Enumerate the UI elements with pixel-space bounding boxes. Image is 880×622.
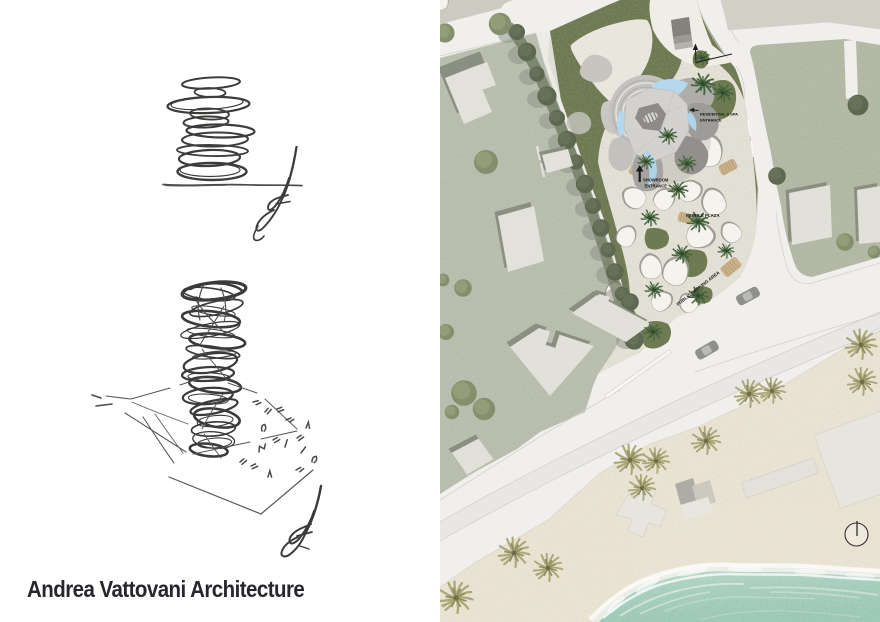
svg-text:ENTRANCE: ENTRANCE — [700, 118, 722, 123]
svg-text:SHOWROOM: SHOWROOM — [643, 178, 669, 183]
svg-text:ENTRANCE: ENTRANCE — [645, 184, 668, 189]
svg-text:PEBBLE PLAZA: PEBBLE PLAZA — [686, 213, 720, 218]
svg-text:RESIDENTIAL & SPA: RESIDENTIAL & SPA — [700, 112, 738, 117]
